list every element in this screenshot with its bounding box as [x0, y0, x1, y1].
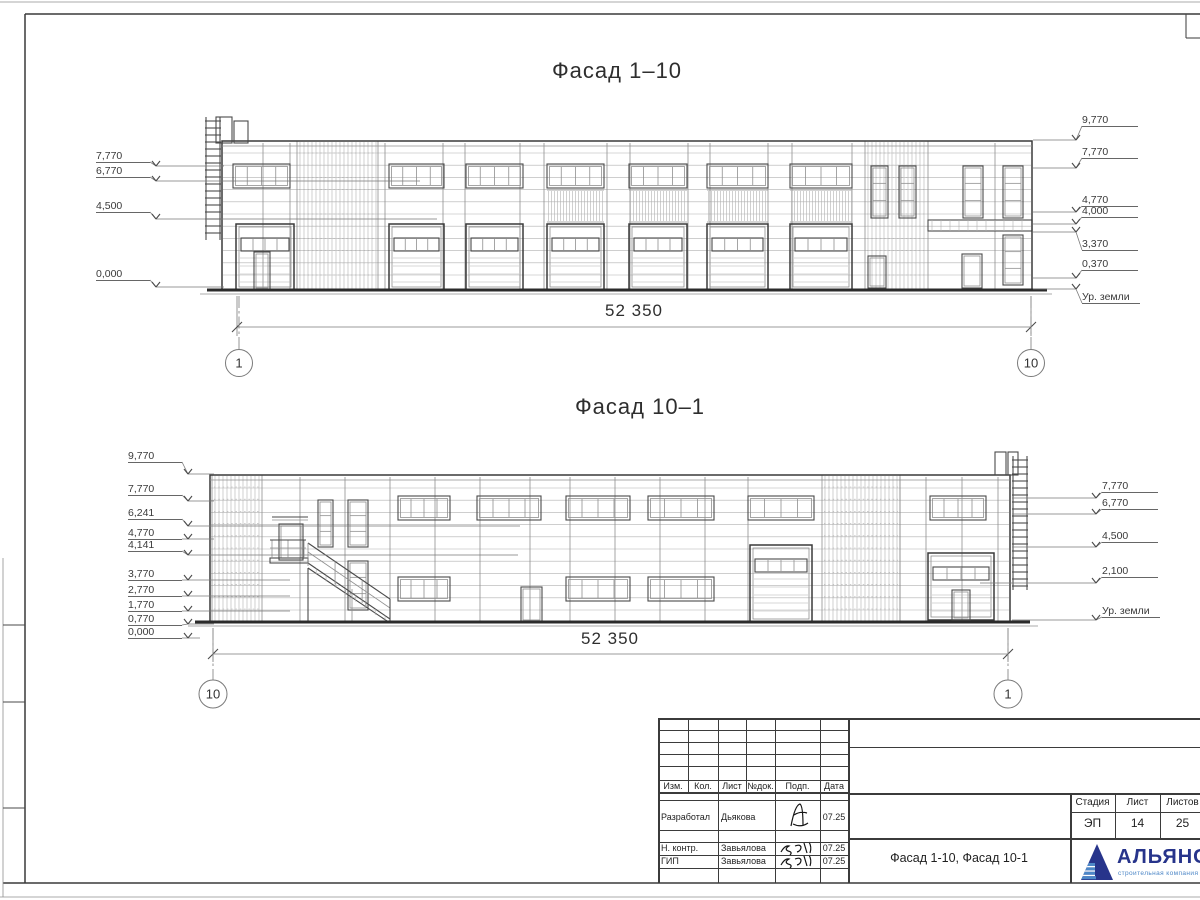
elevation-value: 2,770: [128, 584, 154, 596]
elevation-mark: 4,500: [1102, 530, 1158, 543]
tb-name-gip: Завьялова: [721, 856, 766, 867]
tb-name-developer: Дьякова: [721, 812, 755, 823]
facade1-overall-dimension: 52 350: [584, 301, 684, 321]
facade-10-1-drawing: [188, 452, 1038, 626]
tb-date-developer: 07.25: [820, 812, 848, 823]
elevation-mark: 7,770: [1102, 480, 1158, 493]
facade2-overall-dimension: 52 350: [560, 629, 660, 649]
elevation-mark: 1,770: [128, 599, 182, 612]
tb-col-data: Дата: [820, 781, 848, 792]
elevation-mark: 0,000: [96, 268, 150, 281]
tb-sheets-label: Листов: [1160, 797, 1200, 808]
signature-dyakova: [791, 804, 808, 826]
elevation-value: 9,770: [128, 450, 154, 462]
axis-bubble-10b: 10: [206, 687, 220, 702]
elevation-mark: 4,500: [96, 200, 150, 213]
ground-level-label: Ур. земли: [1102, 605, 1160, 618]
logo-subtitle: строительная компания: [1118, 870, 1198, 877]
elevation-value: 6,770: [96, 165, 122, 177]
elevation-value: 0,770: [128, 613, 154, 625]
tb-date-gip: 07.25: [820, 856, 848, 867]
elevation-value: Ур. земли: [1082, 291, 1130, 303]
elevation-value: 4,141: [128, 539, 154, 551]
axis-bubble-1: 1: [235, 356, 242, 371]
tb-sheet-label: Лист: [1115, 797, 1160, 808]
tb-stage-value: ЭП: [1070, 818, 1115, 829]
elevation-value: Ур. земли: [1102, 605, 1150, 617]
tb-col-podp: Подп.: [775, 781, 820, 792]
elevation-mark: 6,770: [1102, 497, 1158, 510]
elevation-value: 0,370: [1082, 258, 1108, 270]
tb-col-kol: Кол.: [688, 781, 718, 792]
elevation-value: 9,770: [1082, 114, 1108, 126]
elevation-mark: 7,770: [128, 483, 182, 496]
elevation-mark: 3,770: [128, 568, 182, 581]
elevation-mark: 0,000: [128, 626, 182, 639]
tb-name-ncontr: Завьялова: [721, 843, 766, 854]
signatures: [781, 804, 811, 868]
elevation-value: 7,770: [1102, 480, 1128, 492]
elevation-mark: 6,770: [96, 165, 150, 178]
elevation-mark: 6,241: [128, 507, 182, 520]
elevation-value: 4,770: [128, 527, 154, 539]
elevation-value: 0,000: [96, 268, 122, 280]
elevation-mark: 7,770: [96, 150, 150, 163]
elevation-value: 7,770: [128, 483, 154, 495]
elevation-value: 7,770: [96, 150, 122, 162]
elevation-mark: 4,141: [128, 539, 182, 552]
signature-zavyalova-2: [781, 855, 811, 868]
elevation-value: 4,500: [96, 200, 122, 212]
tb-role-developer: Разработал: [661, 812, 710, 823]
elevation-mark: 9,770: [1082, 114, 1138, 127]
facade2-title: Фасад 10–1: [520, 394, 760, 420]
facade1-title: Фасад 1–10: [497, 58, 737, 84]
elevation-value: 6,770: [1102, 497, 1128, 509]
elevation-mark: 2,770: [128, 584, 182, 597]
alliance-pyramid-icon: [1079, 843, 1119, 883]
facade-1-10-drawing: [200, 117, 1052, 294]
drawing-sheet: 1 10 10 1 Фасад 1–10 Фасад 10–1 52 350 5…: [0, 0, 1200, 900]
elevation-value: 3,370: [1082, 238, 1108, 250]
elevation-mark: 9,770: [128, 450, 182, 463]
elevation-value: 7,770: [1082, 146, 1108, 158]
elevation-mark: 2,100: [1102, 565, 1158, 578]
elevation-value: 2,100: [1102, 565, 1128, 577]
elevation-mark: 0,770: [128, 613, 182, 626]
elevation-value: 0,000: [128, 626, 154, 638]
elevation-value: 6,241: [128, 507, 154, 519]
tb-sheets-value: 25: [1160, 818, 1200, 829]
elevation-value: 4,500: [1102, 530, 1128, 542]
elevation-mark: 4,000: [1082, 205, 1138, 218]
elevation-value: 1,770: [128, 599, 154, 611]
tb-stage-label: Стадия: [1070, 797, 1115, 808]
axis-bubble-1b: 1: [1004, 687, 1011, 702]
tb-col-list: Лист: [718, 781, 746, 792]
tb-date-ncontr: 07.25: [820, 843, 848, 854]
elevation-mark: 0,370: [1082, 258, 1138, 271]
ground-level-label: Ур. земли: [1082, 291, 1140, 304]
tb-col-ndok: №док.: [746, 781, 775, 792]
tb-role-gip: ГИП: [661, 856, 679, 867]
company-logo: АЛЬЯНС строительная компания: [1071, 839, 1200, 883]
axis-bubble-10: 10: [1024, 356, 1038, 371]
logo-name: АЛЬЯНС: [1117, 846, 1200, 869]
signature-zavyalova-1: [781, 842, 811, 855]
tb-document-title: Фасад 1-10, Фасад 10-1: [848, 853, 1070, 864]
tb-role-ncontr: Н. контр.: [661, 843, 698, 854]
elevation-value: 4,000: [1082, 205, 1108, 217]
elevation-value: 3,770: [128, 568, 154, 580]
elevation-mark: 7,770: [1082, 146, 1138, 159]
elevation-mark: 3,370: [1082, 238, 1138, 251]
tb-col-izm: Изм.: [658, 781, 688, 792]
tb-sheet-value: 14: [1115, 818, 1160, 829]
